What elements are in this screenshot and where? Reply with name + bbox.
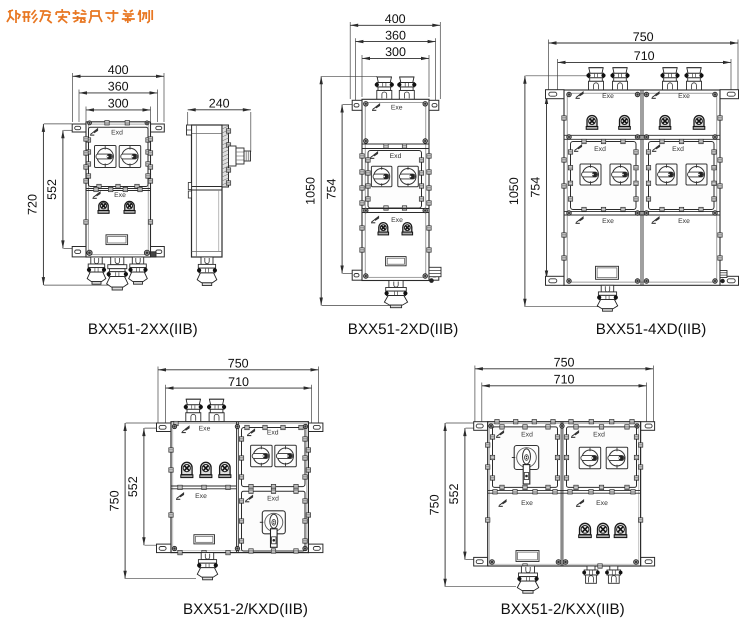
svg-text:Exe: Exe xyxy=(391,217,403,224)
svg-text:BXX51-2/KXD(IIB): BXX51-2/KXD(IIB) xyxy=(183,601,308,618)
svg-text:Exd: Exd xyxy=(672,146,684,153)
svg-text:300: 300 xyxy=(108,97,129,111)
svg-text:552: 552 xyxy=(45,179,59,200)
svg-text:BXX51-4XD(IIB): BXX51-4XD(IIB) xyxy=(596,321,707,338)
svg-text:Exd: Exd xyxy=(593,432,605,439)
svg-text:BXX51-2XX(IIB): BXX51-2XX(IIB) xyxy=(88,321,198,338)
svg-text:552: 552 xyxy=(447,483,461,504)
svg-text:720: 720 xyxy=(26,194,40,215)
svg-text:Exe: Exe xyxy=(114,192,126,199)
svg-text:710: 710 xyxy=(554,373,575,387)
svg-text:BXX51-2/KXX(IIB): BXX51-2/KXX(IIB) xyxy=(501,601,625,618)
svg-text:300: 300 xyxy=(385,45,406,59)
svg-text:Exe: Exe xyxy=(199,426,211,433)
svg-text:750: 750 xyxy=(107,490,121,511)
svg-text:1050: 1050 xyxy=(303,177,317,205)
svg-text:Exd: Exd xyxy=(267,430,279,437)
svg-text:1050: 1050 xyxy=(507,177,521,205)
svg-text:Exe: Exe xyxy=(596,500,608,507)
svg-text:750: 750 xyxy=(633,30,654,44)
svg-text:Exe: Exe xyxy=(195,493,207,500)
svg-text:754: 754 xyxy=(529,177,543,198)
svg-text:750: 750 xyxy=(554,356,575,370)
svg-text:Exd: Exd xyxy=(267,496,279,503)
svg-text:360: 360 xyxy=(385,28,406,42)
svg-text:240: 240 xyxy=(209,97,230,111)
svg-text:750: 750 xyxy=(228,357,249,371)
svg-text:400: 400 xyxy=(108,63,129,77)
svg-text:Exd: Exd xyxy=(594,146,606,153)
svg-text:552: 552 xyxy=(126,476,140,497)
svg-text:Exe: Exe xyxy=(391,105,403,112)
svg-text:750: 750 xyxy=(427,494,441,515)
svg-text:360: 360 xyxy=(108,80,129,94)
svg-text:Exe: Exe xyxy=(678,93,690,100)
svg-text:Exd: Exd xyxy=(390,153,402,160)
svg-text:Exe: Exe xyxy=(678,218,690,225)
svg-text:Exd: Exd xyxy=(111,130,123,137)
svg-text:710: 710 xyxy=(634,49,655,63)
svg-text:BXX51-2XD(IIB): BXX51-2XD(IIB) xyxy=(348,321,459,338)
svg-text:Exd: Exd xyxy=(521,432,533,439)
svg-text:Exe: Exe xyxy=(602,93,614,100)
svg-text:710: 710 xyxy=(228,375,249,389)
svg-text:Exe: Exe xyxy=(602,218,614,225)
svg-text:Exe: Exe xyxy=(521,500,533,507)
svg-text:400: 400 xyxy=(385,12,406,26)
svg-text:754: 754 xyxy=(324,179,338,200)
